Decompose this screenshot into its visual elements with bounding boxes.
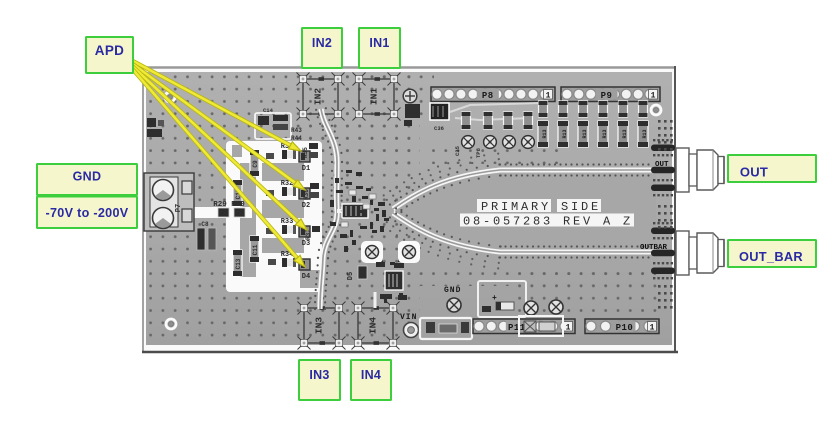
svg-text:IN1: IN1 bbox=[369, 88, 380, 105]
svg-text:APD: APD bbox=[95, 43, 124, 58]
svg-text:IN4: IN4 bbox=[361, 368, 381, 382]
svg-text:VIN: VIN bbox=[400, 313, 417, 322]
svg-text:D5: D5 bbox=[347, 272, 355, 280]
svg-text:C13: C13 bbox=[235, 258, 242, 269]
svg-text:IN3: IN3 bbox=[309, 368, 329, 382]
svg-text:D4: D4 bbox=[302, 273, 310, 281]
svg-text:R37: R37 bbox=[305, 229, 312, 240]
svg-text:C36: C36 bbox=[434, 125, 444, 132]
svg-text:IN1: IN1 bbox=[369, 36, 389, 50]
svg-text:P11: P11 bbox=[508, 323, 526, 333]
svg-text:R13: R13 bbox=[602, 129, 608, 138]
svg-text:P8: P8 bbox=[482, 91, 494, 101]
svg-text:P10: P10 bbox=[616, 323, 634, 333]
svg-text:R33: R33 bbox=[281, 218, 294, 226]
svg-text:1: 1 bbox=[651, 92, 656, 101]
svg-text:OUT: OUT bbox=[740, 165, 768, 180]
svg-text:PRIMARY SIDE: PRIMARY SIDE bbox=[481, 200, 601, 214]
svg-text:IN4: IN4 bbox=[368, 317, 379, 334]
svg-text:D3: D3 bbox=[302, 240, 310, 248]
svg-text:1: 1 bbox=[546, 92, 551, 101]
svg-text:C8: C8 bbox=[201, 221, 209, 228]
svg-text:C14: C14 bbox=[263, 107, 274, 114]
svg-text:IN3: IN3 bbox=[314, 317, 325, 334]
svg-text:GND: GND bbox=[444, 286, 461, 295]
svg-text:R13: R13 bbox=[582, 129, 588, 138]
svg-text:1: 1 bbox=[650, 324, 655, 333]
svg-text:IN2: IN2 bbox=[312, 36, 332, 50]
svg-text:IN2: IN2 bbox=[313, 88, 324, 105]
svg-text:+: + bbox=[492, 294, 497, 303]
svg-text:C35: C35 bbox=[454, 145, 461, 156]
svg-text:OUTBAR: OUTBAR bbox=[640, 244, 668, 252]
svg-text:R43: R43 bbox=[291, 127, 302, 134]
svg-text:R35: R35 bbox=[302, 147, 309, 158]
svg-text:C9: C9 bbox=[252, 160, 259, 168]
svg-text:R13: R13 bbox=[542, 129, 548, 138]
svg-text:P7: P7 bbox=[175, 204, 183, 212]
svg-text:D1: D1 bbox=[302, 165, 310, 173]
svg-text:-70V to -200V: -70V to -200V bbox=[46, 206, 129, 220]
svg-text:OUT: OUT bbox=[655, 161, 669, 169]
svg-text:OUT_BAR: OUT_BAR bbox=[739, 249, 803, 264]
svg-text:R44: R44 bbox=[291, 135, 302, 142]
svg-text:08-057283 REV A Z: 08-057283 REV A Z bbox=[463, 215, 633, 229]
svg-text:R13: R13 bbox=[622, 129, 628, 138]
svg-text:C11: C11 bbox=[252, 244, 259, 255]
svg-text:R13: R13 bbox=[562, 129, 568, 138]
svg-text:R13: R13 bbox=[642, 129, 648, 138]
svg-text:GND: GND bbox=[73, 170, 102, 184]
svg-text:P9: P9 bbox=[601, 91, 613, 101]
svg-text:R36: R36 bbox=[303, 189, 310, 200]
svg-text:TP8: TP8 bbox=[475, 147, 482, 158]
svg-text:1: 1 bbox=[566, 324, 571, 333]
svg-text:D2: D2 bbox=[302, 202, 310, 210]
